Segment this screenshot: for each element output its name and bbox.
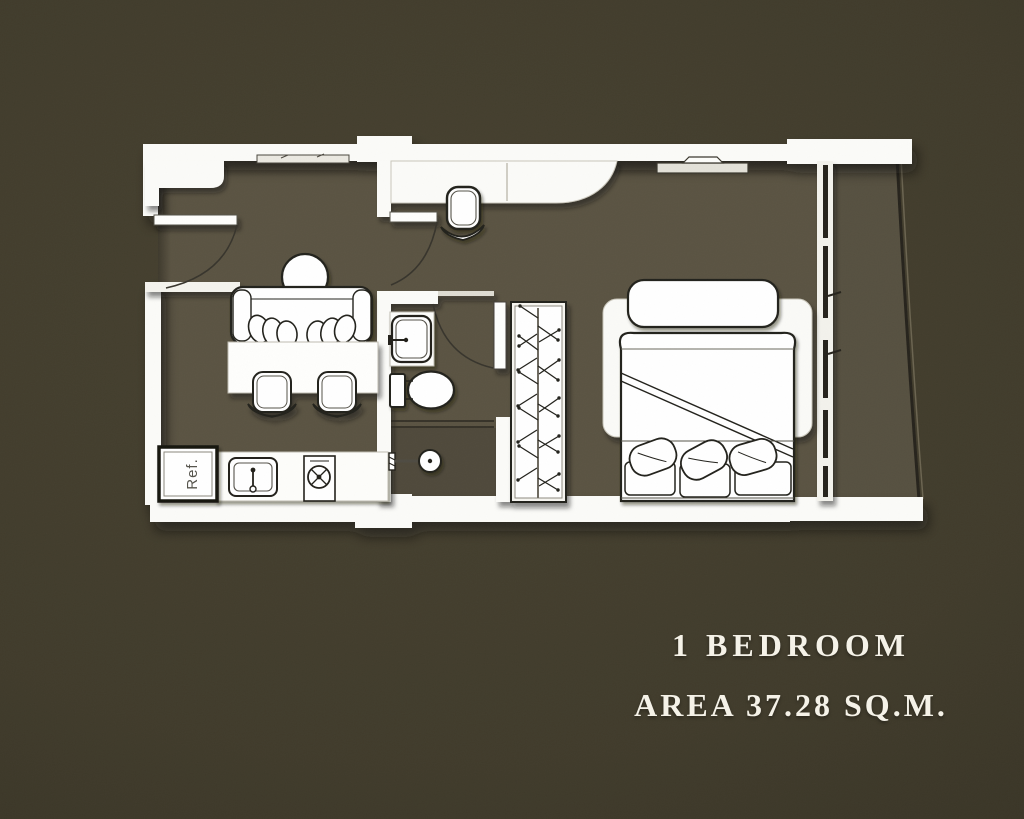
plan-caption: 1 BEDROOM AREA 37.28 SQ.M.	[601, 629, 981, 722]
floorplan-page: Ref.	[0, 0, 1024, 819]
caption-line-1: 1 BEDROOM	[601, 629, 981, 662]
caption-line-2: AREA 37.28 SQ.M.	[601, 689, 981, 722]
